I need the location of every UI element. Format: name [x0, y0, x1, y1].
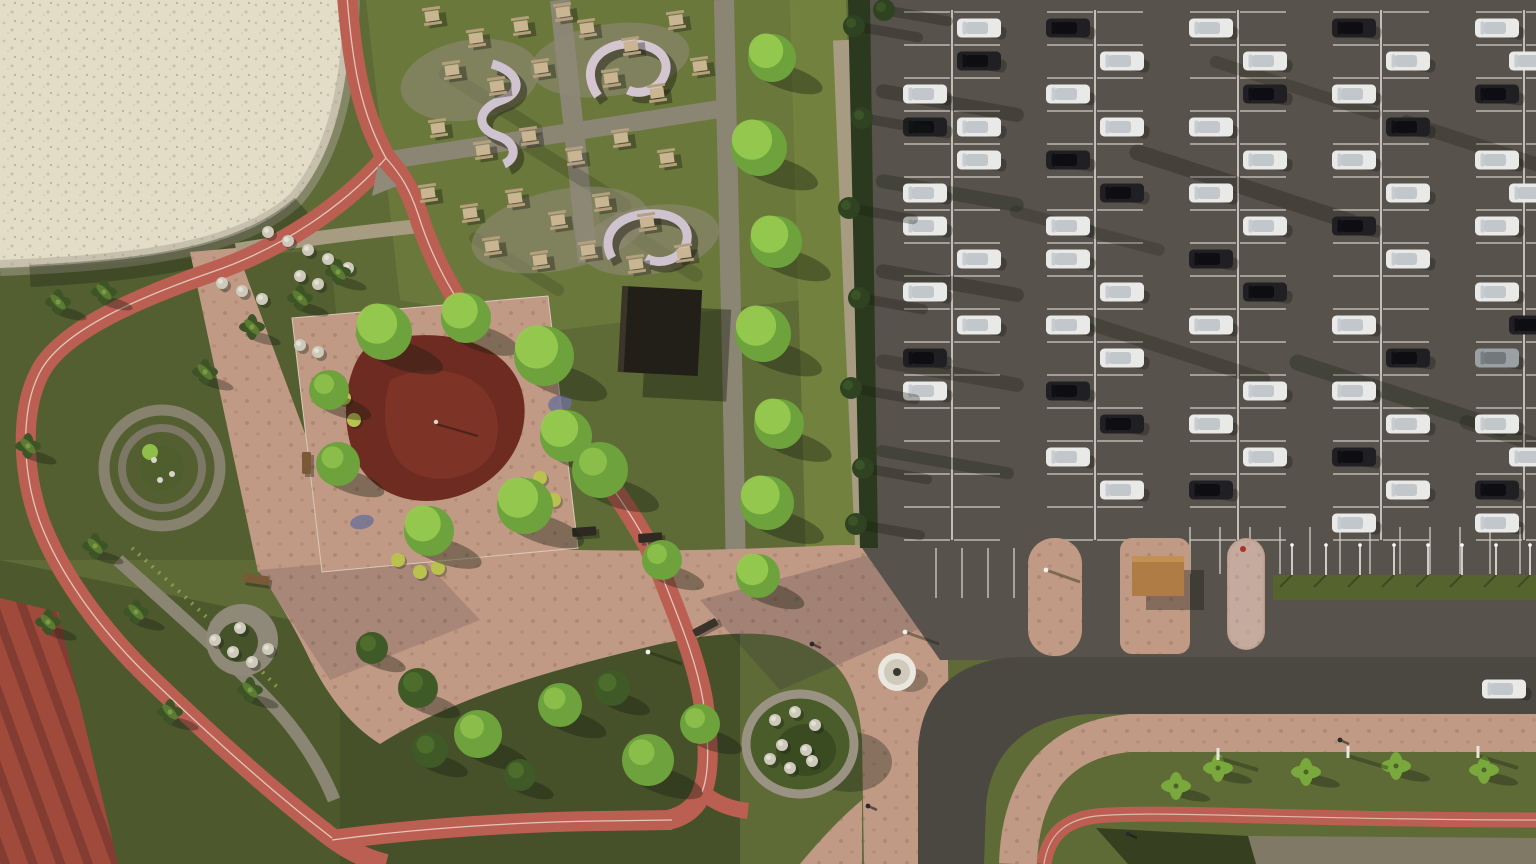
car — [1046, 448, 1090, 467]
car — [1332, 85, 1376, 104]
aerial-site-render — [0, 0, 1536, 864]
car — [957, 118, 1001, 137]
car — [1189, 415, 1233, 434]
car — [957, 316, 1001, 335]
car — [1100, 481, 1144, 500]
car — [1189, 184, 1233, 203]
car — [1386, 415, 1430, 434]
car — [1100, 415, 1144, 434]
car — [1475, 217, 1519, 236]
car — [1100, 184, 1144, 203]
gravel-strip — [1248, 836, 1536, 864]
car — [1482, 680, 1526, 699]
car — [1243, 85, 1287, 104]
car — [1189, 118, 1233, 137]
cobble-path-vertical — [724, 0, 736, 592]
car — [903, 283, 947, 302]
car — [1243, 382, 1287, 401]
car — [1243, 52, 1287, 71]
car — [1475, 481, 1519, 500]
car — [1332, 316, 1376, 335]
car — [957, 52, 1001, 71]
car — [1475, 85, 1519, 104]
car — [1386, 349, 1430, 368]
car — [1046, 382, 1090, 401]
car — [1046, 217, 1090, 236]
car — [1243, 448, 1287, 467]
car — [903, 85, 947, 104]
car — [1386, 184, 1430, 203]
car — [1243, 151, 1287, 170]
car — [1046, 19, 1090, 38]
car — [1189, 316, 1233, 335]
car — [1100, 118, 1144, 137]
car — [1332, 217, 1376, 236]
car — [1189, 19, 1233, 38]
glass-windbreak — [1229, 540, 1263, 648]
car — [1243, 217, 1287, 236]
car — [1332, 151, 1376, 170]
car — [1189, 250, 1233, 269]
car — [1332, 19, 1376, 38]
car — [1475, 514, 1519, 533]
site-plan-canvas — [0, 0, 1536, 864]
building-roof — [618, 286, 702, 376]
car — [1475, 283, 1519, 302]
car — [1509, 52, 1536, 71]
car — [1046, 250, 1090, 269]
car — [1332, 448, 1376, 467]
car — [1509, 316, 1536, 335]
car — [1475, 151, 1519, 170]
car — [1243, 283, 1287, 302]
car — [1100, 283, 1144, 302]
car — [1509, 184, 1536, 203]
car — [1332, 514, 1376, 533]
car-on-road — [1482, 680, 1532, 702]
car — [1046, 151, 1090, 170]
car — [903, 184, 947, 203]
car — [1386, 481, 1430, 500]
car — [1386, 250, 1430, 269]
parking-island — [1028, 538, 1082, 656]
car — [957, 151, 1001, 170]
play-equipment — [434, 420, 438, 424]
car — [1046, 316, 1090, 335]
car — [957, 19, 1001, 38]
spiral-garden — [104, 410, 220, 526]
grass-median — [1273, 575, 1536, 600]
car — [1475, 349, 1519, 368]
car — [1475, 19, 1519, 38]
bench — [302, 452, 311, 474]
car — [903, 349, 947, 368]
car — [1386, 52, 1430, 71]
car — [957, 250, 1001, 269]
car — [1046, 85, 1090, 104]
car — [1509, 448, 1536, 467]
car — [1100, 349, 1144, 368]
car — [1332, 382, 1376, 401]
car — [1386, 118, 1430, 137]
signal-marker — [1240, 546, 1246, 552]
car — [1100, 52, 1144, 71]
car — [1475, 415, 1519, 434]
car — [1189, 481, 1233, 500]
